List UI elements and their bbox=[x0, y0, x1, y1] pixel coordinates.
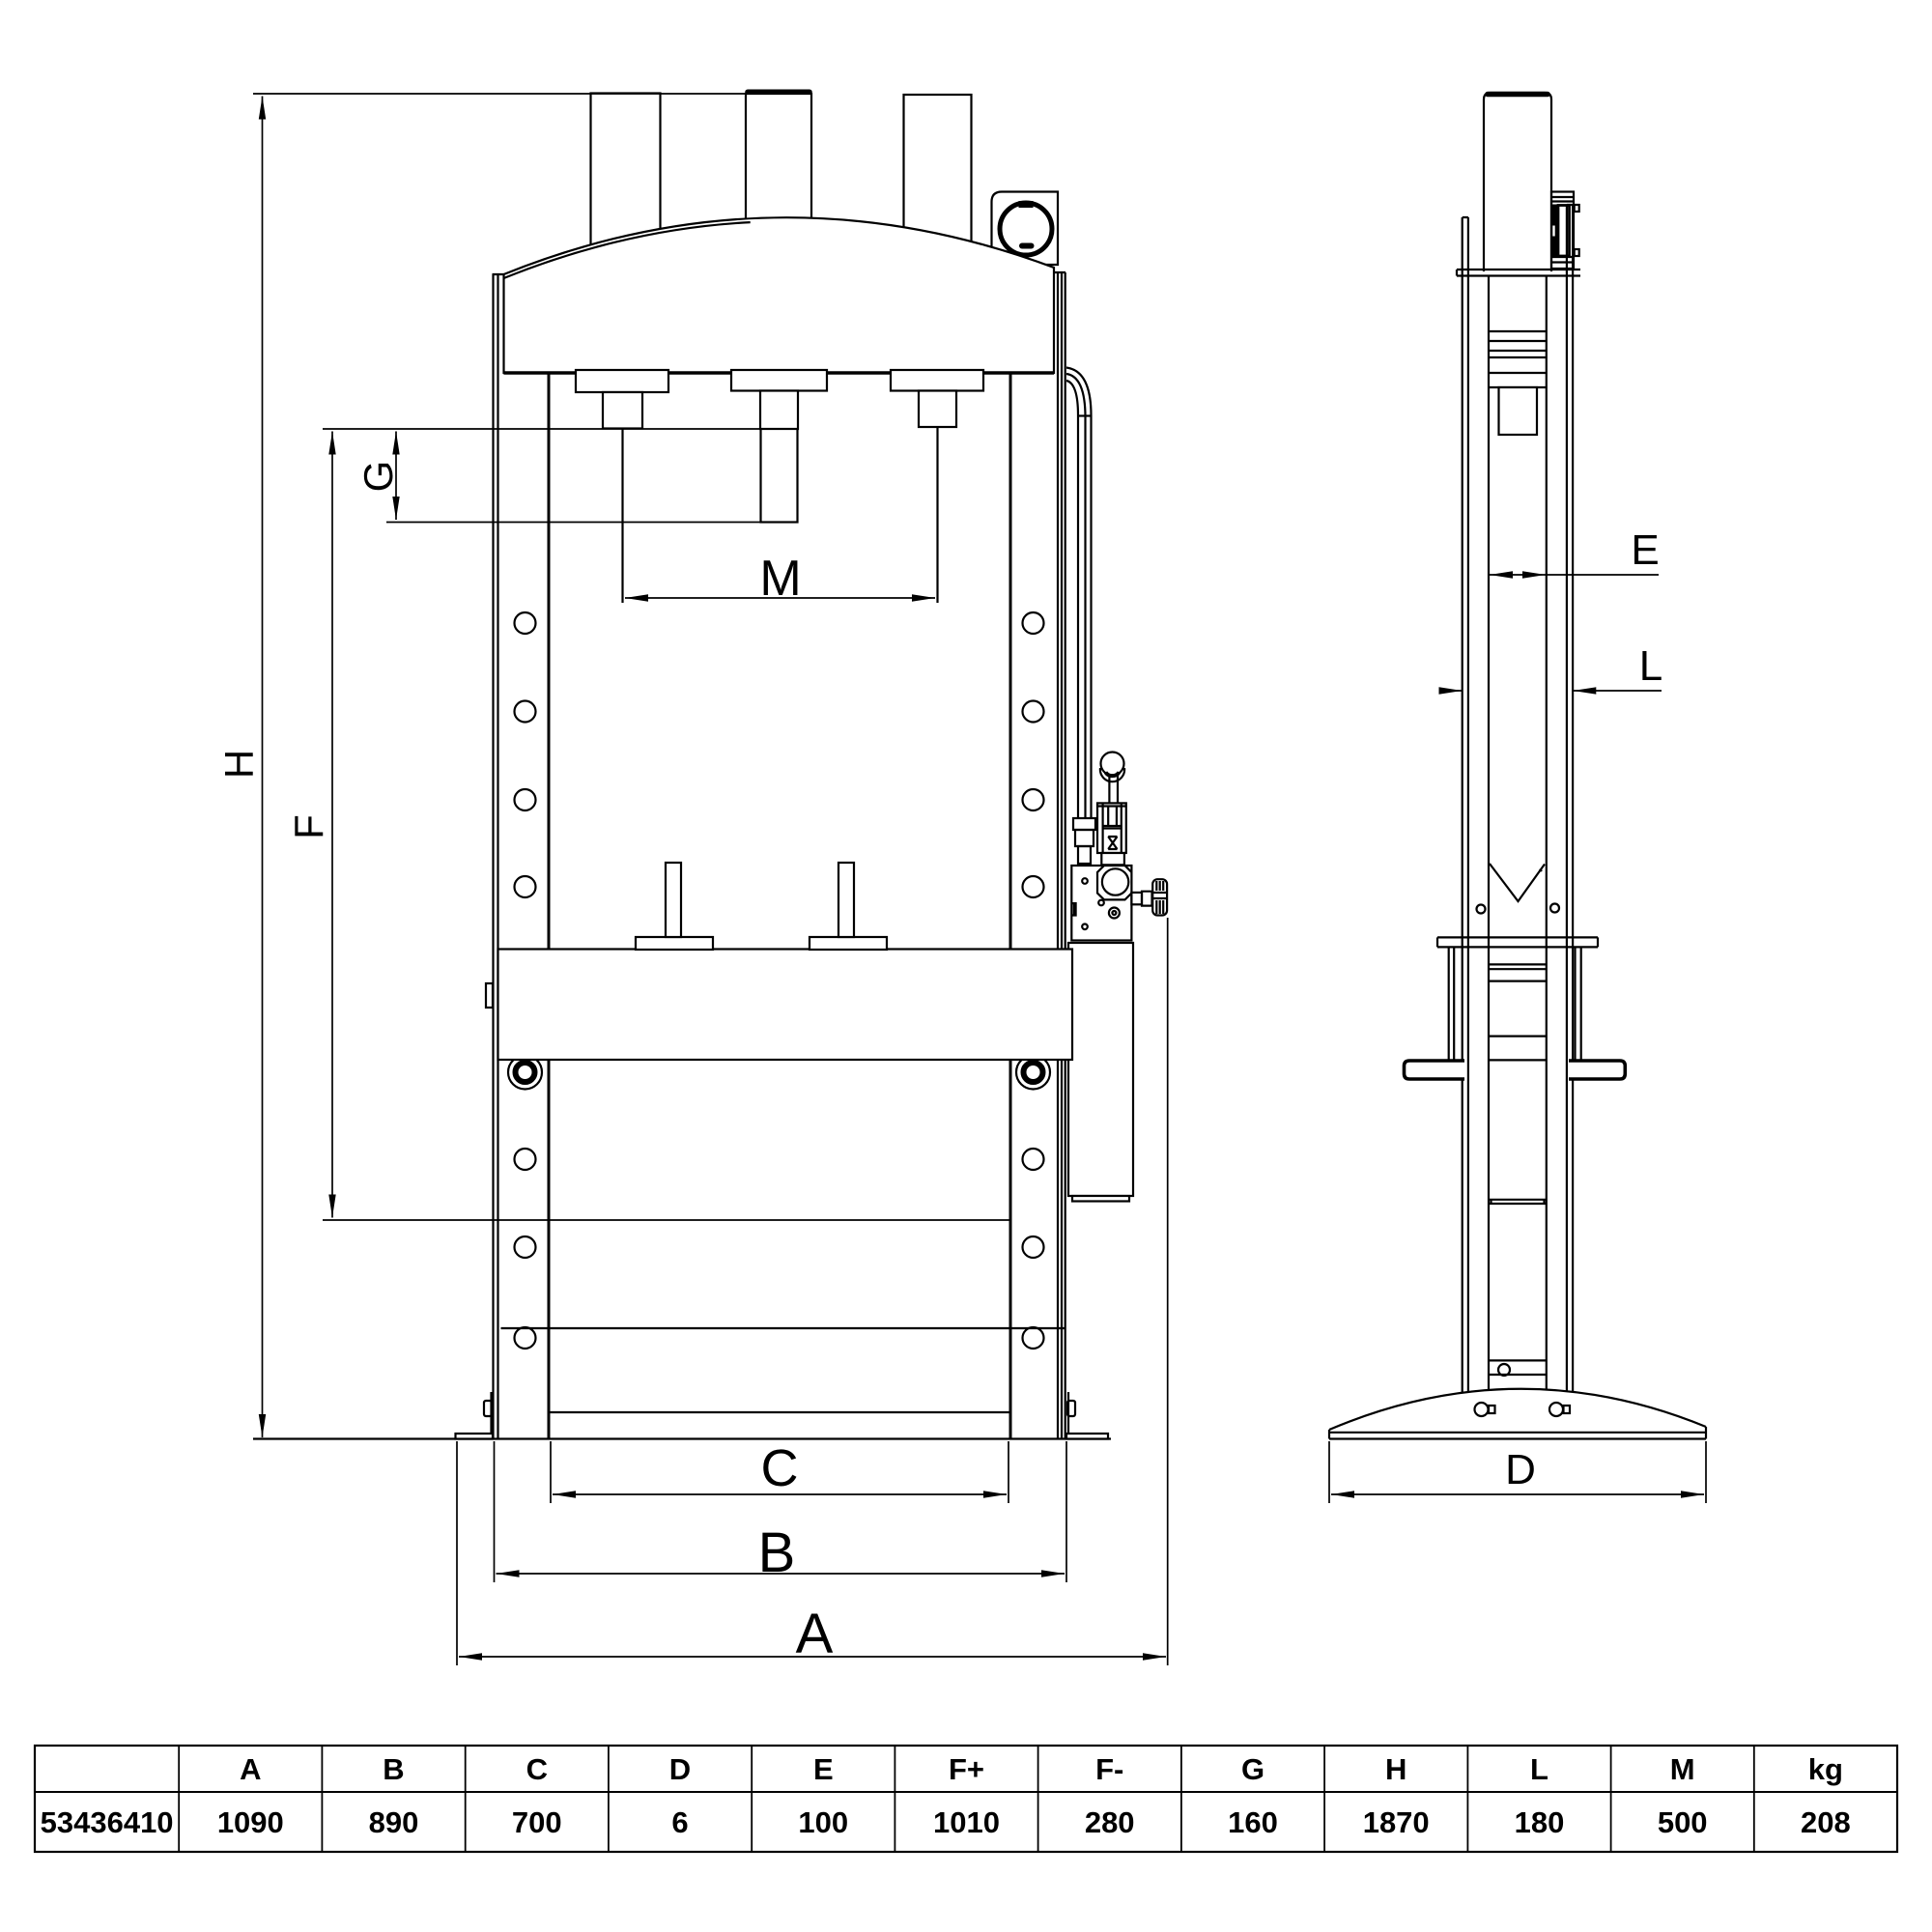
svg-text:180: 180 bbox=[1515, 1805, 1565, 1839]
svg-text:280: 280 bbox=[1085, 1805, 1135, 1839]
svg-text:100: 100 bbox=[798, 1805, 848, 1839]
svg-text:1090: 1090 bbox=[217, 1805, 284, 1839]
svg-text:F-: F- bbox=[1095, 1752, 1123, 1786]
svg-text:H: H bbox=[1385, 1752, 1406, 1786]
svg-text:1870: 1870 bbox=[1363, 1805, 1430, 1839]
svg-text:208: 208 bbox=[1801, 1805, 1851, 1839]
svg-text:A: A bbox=[796, 1603, 834, 1665]
svg-text:M: M bbox=[1670, 1752, 1695, 1786]
svg-text:E: E bbox=[813, 1752, 834, 1786]
svg-text:E: E bbox=[1631, 526, 1659, 574]
svg-text:L: L bbox=[1530, 1752, 1548, 1786]
svg-text:500: 500 bbox=[1658, 1805, 1708, 1839]
svg-text:1010: 1010 bbox=[933, 1805, 1000, 1839]
svg-text:F+: F+ bbox=[949, 1752, 984, 1786]
svg-text:D: D bbox=[669, 1752, 691, 1786]
svg-text:53436410: 53436410 bbox=[41, 1805, 174, 1839]
svg-text:C: C bbox=[761, 1439, 799, 1497]
svg-text:A: A bbox=[240, 1752, 261, 1786]
svg-text:B: B bbox=[383, 1752, 404, 1786]
svg-text:H: H bbox=[216, 750, 262, 779]
svg-text:C: C bbox=[526, 1752, 548, 1786]
svg-text:B: B bbox=[758, 1521, 796, 1584]
svg-text:6: 6 bbox=[671, 1805, 688, 1839]
svg-text:kg: kg bbox=[1808, 1752, 1843, 1786]
svg-text:700: 700 bbox=[512, 1805, 562, 1839]
svg-text:890: 890 bbox=[369, 1805, 419, 1839]
svg-text:D: D bbox=[1505, 1446, 1536, 1493]
svg-text:G: G bbox=[1241, 1752, 1264, 1786]
svg-text:L: L bbox=[1639, 642, 1662, 690]
svg-text:160: 160 bbox=[1228, 1805, 1278, 1839]
svg-text:F: F bbox=[286, 814, 331, 839]
svg-text:M: M bbox=[759, 551, 801, 607]
svg-text:G: G bbox=[355, 461, 401, 493]
